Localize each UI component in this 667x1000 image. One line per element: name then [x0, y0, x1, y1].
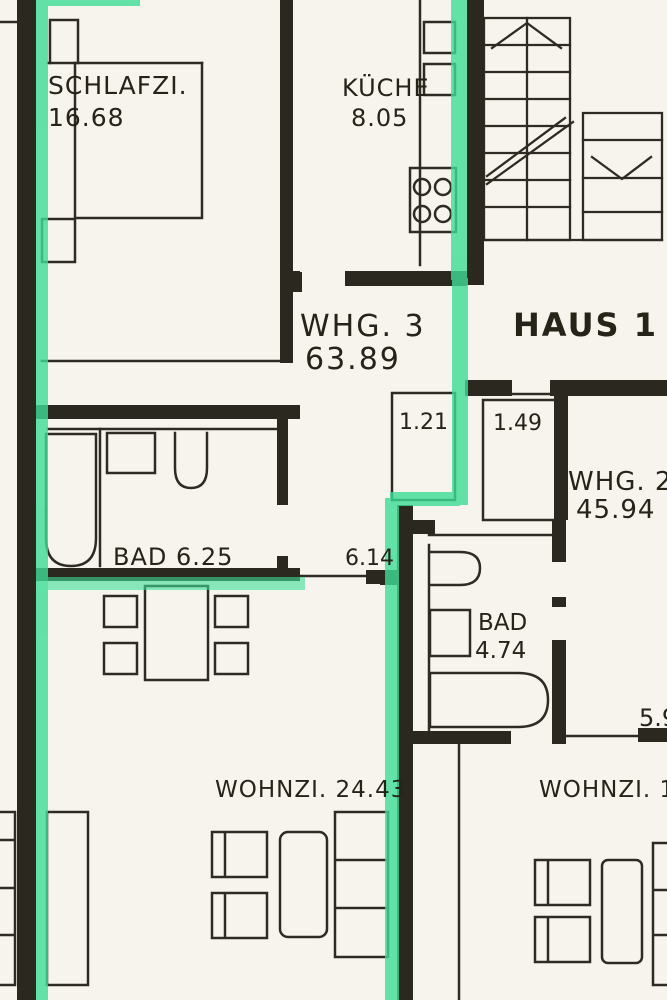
- marker-stripe-living-top: [36, 577, 305, 590]
- wall: [277, 419, 288, 505]
- wall: [17, 405, 300, 419]
- apartment2-area: 45.94: [576, 495, 655, 525]
- wall: [345, 271, 467, 286]
- edge-dim: 5.9: [639, 704, 667, 732]
- wall: [552, 640, 566, 744]
- hall3-dim: 6.14: [345, 546, 394, 571]
- marker-stripe-kitchen: [451, 0, 467, 280]
- wall: [280, 0, 293, 363]
- apartment2-label: WHG. 2: [568, 467, 667, 497]
- floorplan-scan: SCHLAFZI. 16.68 KÜCHE 8.05 WHG. 3 63.89 …: [0, 0, 667, 1000]
- wall: [411, 731, 511, 744]
- kitchen-area: 8.05: [351, 104, 408, 132]
- bath2-area: 4.74: [475, 638, 526, 664]
- entry-dim: 1.49: [493, 411, 542, 436]
- living3-label: WOHNZI. 24.43: [215, 777, 406, 803]
- bath3-label: BAD 6.25: [113, 543, 233, 571]
- marker-stripe-corridor: [385, 498, 399, 1000]
- wall: [397, 505, 413, 1000]
- bedroom-area: 16.68: [48, 103, 125, 132]
- living2-label: WOHNZI. 17.: [539, 777, 667, 803]
- wall: [465, 380, 512, 396]
- wall-door-jamb: [277, 556, 288, 568]
- kitchen-label: KÜCHE: [342, 73, 430, 102]
- floor-plan-image: SCHLAFZI. 16.68 KÜCHE 8.05 WHG. 3 63.89 …: [0, 0, 667, 1000]
- wall: [552, 520, 566, 562]
- wall: [293, 271, 300, 286]
- marker-stripe-jog: [390, 492, 460, 506]
- apartment3-label: WHG. 3: [300, 309, 426, 344]
- wc-dim: 1.21: [399, 410, 448, 435]
- wall-door-jamb: [552, 597, 566, 607]
- wall: [554, 390, 568, 520]
- bedroom-label: SCHLAFZI.: [48, 71, 188, 100]
- marker-stripe-top: [48, 0, 140, 6]
- bath2-label: BAD: [478, 610, 527, 636]
- marker-stripe-hall: [452, 278, 468, 505]
- marker-stripe-left: [36, 0, 48, 1000]
- apartment3-area: 63.89: [305, 342, 401, 377]
- wall: [467, 0, 484, 285]
- house-label: HAUS 1: [513, 306, 658, 344]
- wall: [17, 0, 36, 1000]
- wall-stub: [366, 570, 388, 584]
